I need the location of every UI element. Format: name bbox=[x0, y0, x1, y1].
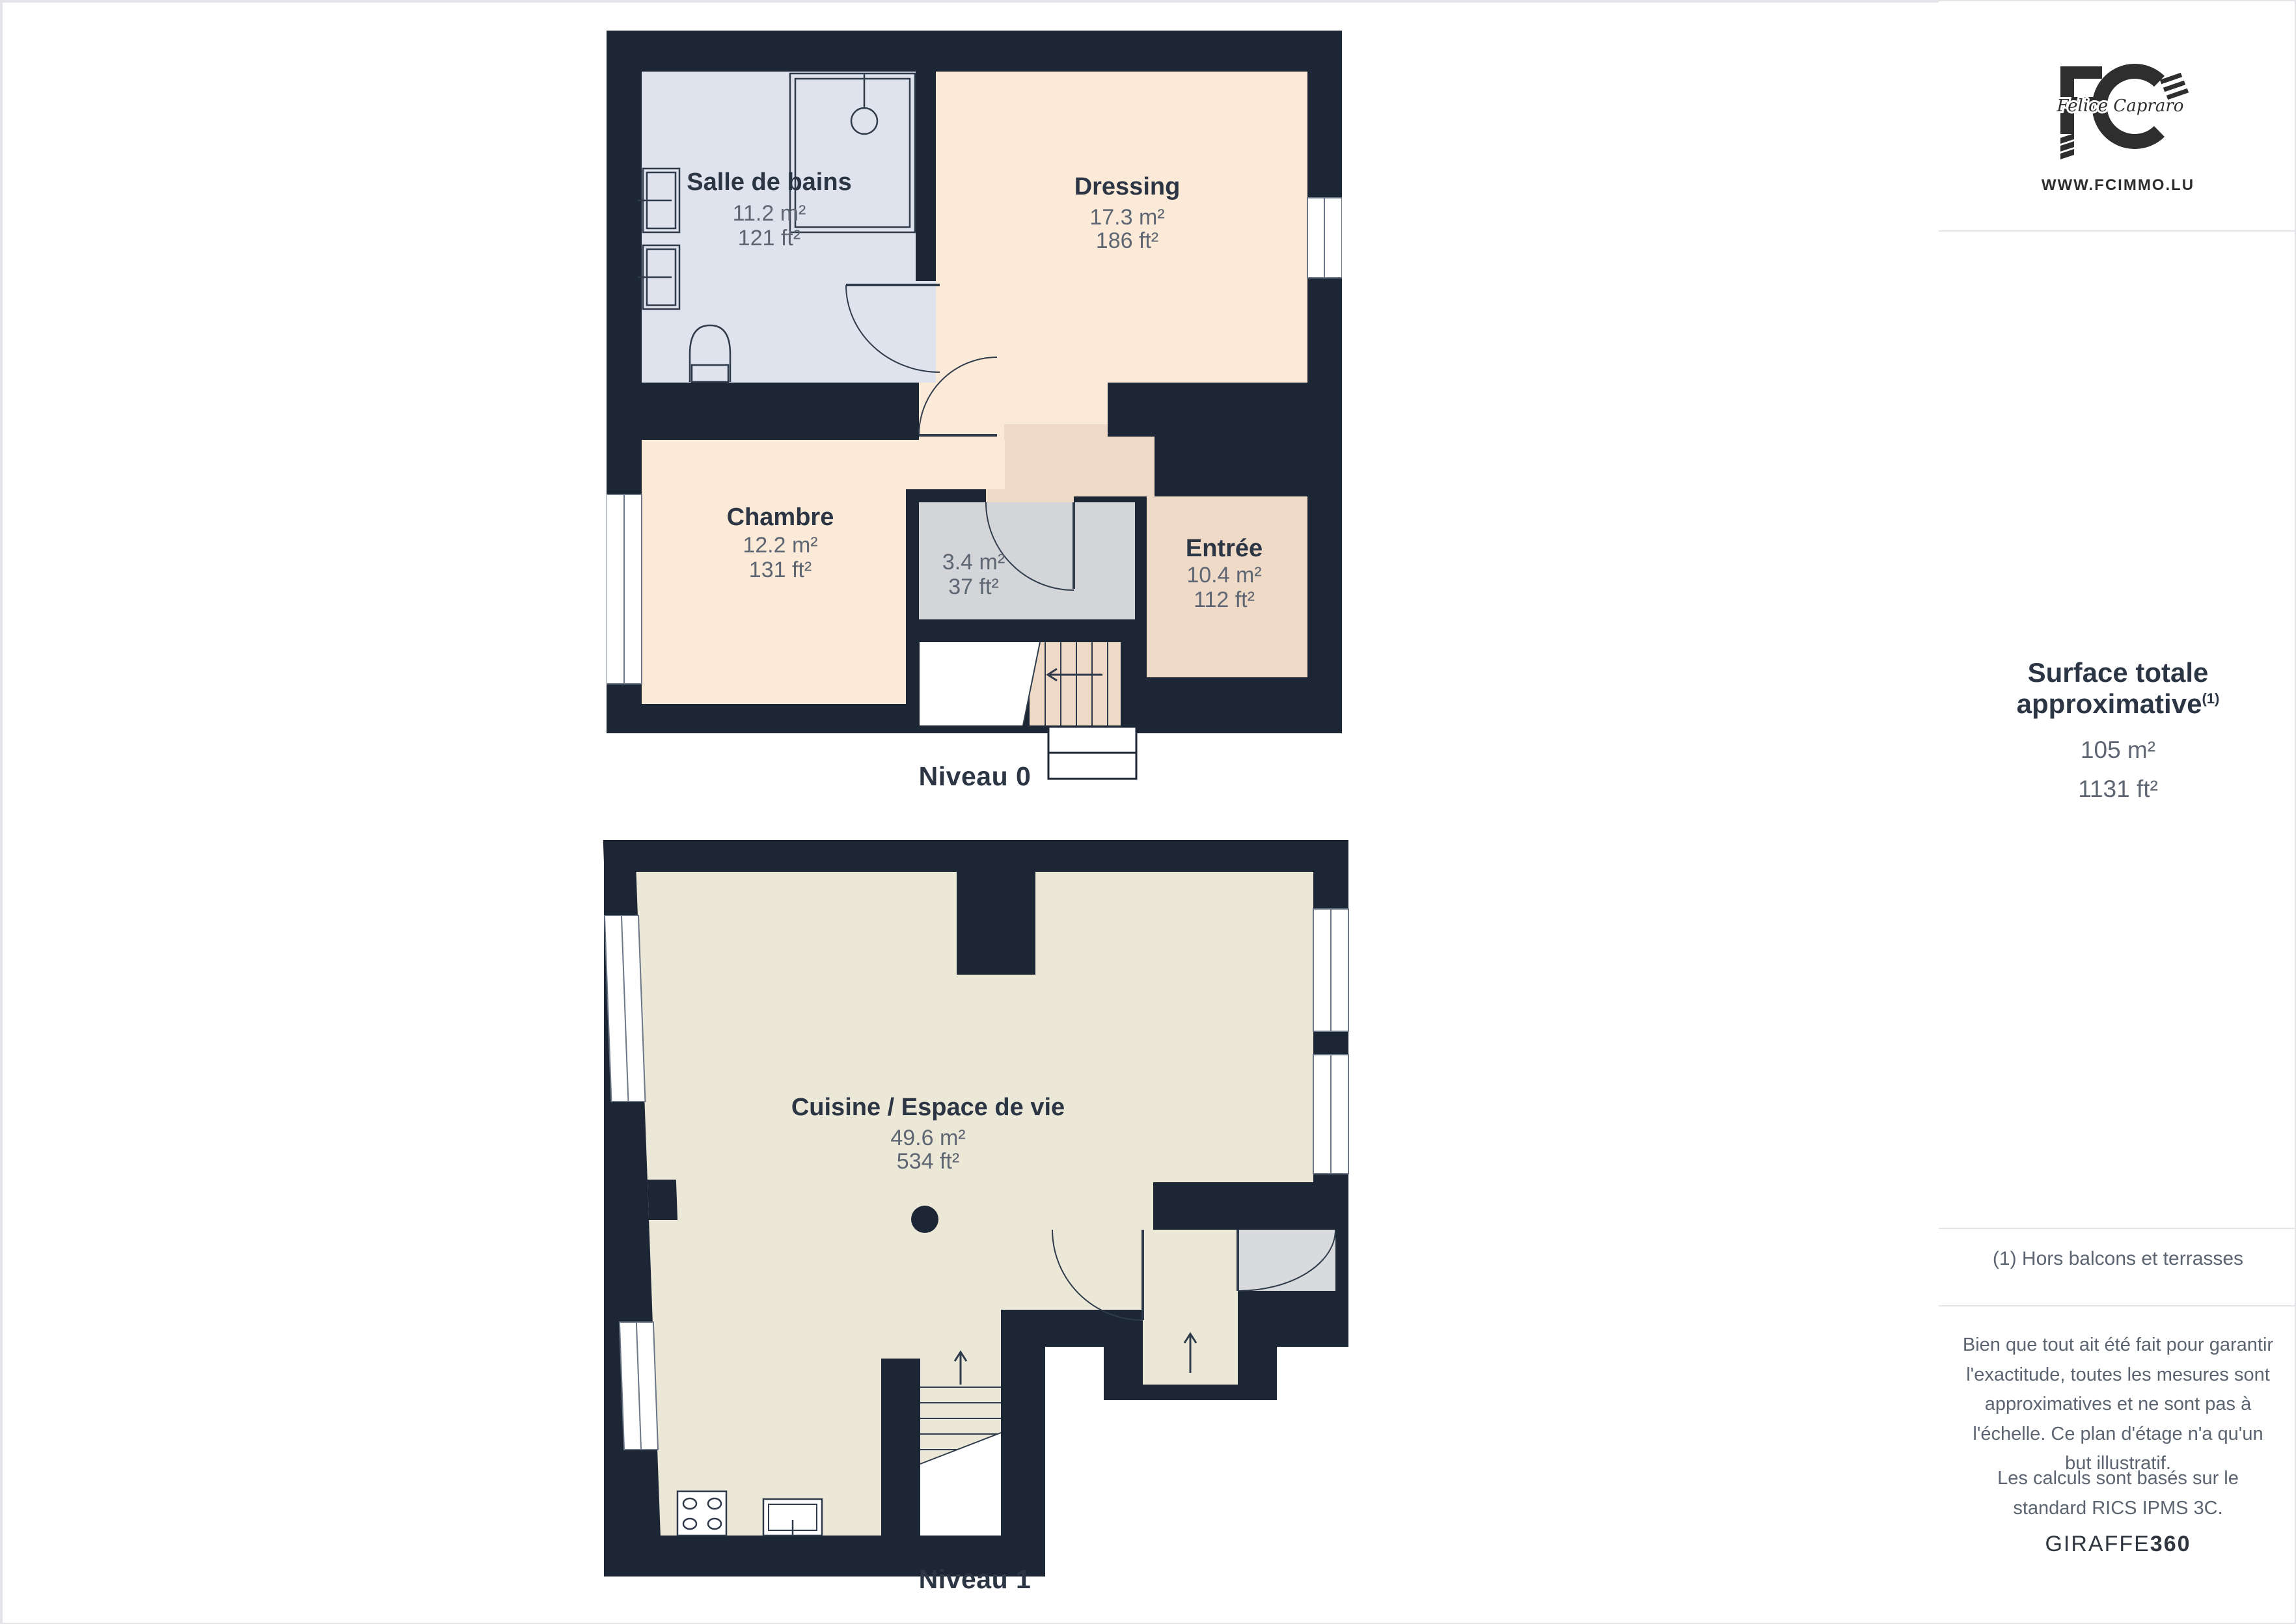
info-sidebar: Felice Capraro WWW.FCIMMO.LU Surface tot… bbox=[1939, 1, 2296, 1624]
surface-total-block: Surface totale approximative(1) 105 m² 1… bbox=[1939, 657, 2296, 803]
column-dot bbox=[911, 1206, 938, 1233]
door-niche bbox=[1238, 1230, 1335, 1291]
brand-giraffe360: GIRAFFE360 bbox=[1939, 1532, 2296, 1557]
room-area-ft2: 186 ft² bbox=[1096, 228, 1158, 253]
fc-logo-monogram: Felice Capraro bbox=[2043, 59, 2193, 169]
window-cuisine-right-bottom bbox=[1313, 1055, 1348, 1174]
window-chambre-left bbox=[607, 494, 642, 684]
window-cuisine-left-top bbox=[605, 915, 645, 1102]
hall-floor-upper bbox=[1004, 383, 1108, 424]
hall-floor-right bbox=[1108, 437, 1155, 496]
surface-value-m2: 105 m² bbox=[1939, 737, 2296, 764]
sidebar-divider bbox=[1939, 1305, 2296, 1306]
wc-door-opening bbox=[986, 489, 1074, 502]
bathroom-door-opening bbox=[916, 281, 936, 383]
room-label: Dressing bbox=[1074, 173, 1181, 200]
surface-title: Surface totale approximative(1) bbox=[1939, 657, 2296, 720]
room-area-m2: 11.2 m² bbox=[733, 201, 806, 226]
stove-icon bbox=[677, 1491, 726, 1536]
brand-suffix: 360 bbox=[2150, 1532, 2191, 1556]
room-label: Entrée bbox=[1186, 535, 1263, 562]
room-area-m2: 49.6 m² bbox=[890, 1126, 965, 1150]
room-area-m2: 12.2 m² bbox=[743, 533, 817, 558]
agency-logo: Felice Capraro WWW.FCIMMO.LU bbox=[1939, 59, 2296, 195]
vestibule-side-wall bbox=[1104, 1347, 1143, 1387]
sidebar-divider-vertical bbox=[1, 1, 3, 1624]
room-area-ft2: 131 ft² bbox=[749, 558, 812, 582]
room-label: Salle de bains bbox=[687, 169, 851, 196]
surface-footnote-marker: (1) bbox=[2202, 690, 2219, 707]
footnote-text: (1) Hors balcons et terrasses bbox=[1939, 1248, 2296, 1270]
sidebar-divider bbox=[1939, 1228, 2296, 1229]
level-1-label: Niveau 1 bbox=[780, 1564, 1170, 1595]
window-cuisine-right-top bbox=[1313, 909, 1348, 1031]
wall-nub bbox=[648, 1180, 677, 1220]
stairs-void bbox=[920, 642, 1040, 725]
chimney-notch bbox=[957, 872, 1035, 975]
alcove-wall bbox=[1153, 1182, 1348, 1230]
surface-value-ft2: 1131 ft² bbox=[1939, 776, 2296, 803]
sidebar-divider bbox=[1939, 230, 2296, 232]
logo-website-text: WWW.FCIMMO.LU bbox=[1939, 176, 2296, 195]
room-area-ft2: 112 ft² bbox=[1194, 588, 1255, 612]
section-divider-horizontal bbox=[1, 1, 1939, 3]
kitchen-sink-icon bbox=[763, 1499, 822, 1536]
disclaimer-standard: Les calculs sont basés sur le standard R… bbox=[1961, 1464, 2276, 1523]
chambre-door-opening bbox=[919, 383, 1004, 440]
room-area-m2: 3.4 m² bbox=[942, 550, 1005, 575]
stairwell-wall-left bbox=[881, 1359, 920, 1577]
room-area-ft2: 534 ft² bbox=[897, 1149, 959, 1174]
floorplan-page: Salle de bains 11.2 m² 121 ft² Dressing … bbox=[0, 0, 2296, 1624]
room-label: Cuisine / Espace de vie bbox=[791, 1094, 1065, 1121]
room-chambre-floor-strip bbox=[906, 440, 1005, 489]
window-dressing-right bbox=[1307, 198, 1342, 278]
logo-script-text: Felice Capraro bbox=[2056, 96, 2183, 116]
brand-name: GIRAFFE bbox=[2045, 1532, 2150, 1556]
room-area-m2: 17.3 m² bbox=[1089, 205, 1164, 230]
disclaimer-accuracy: Bien que tout ait été fait pour garantir… bbox=[1961, 1331, 2276, 1479]
window-cuisine-left-bottom bbox=[620, 1322, 658, 1450]
room-area-m2: 10.4 m² bbox=[1186, 563, 1261, 588]
floor-plan-level-0: Salle de bains 11.2 m² 121 ft² Dressing … bbox=[607, 31, 1342, 785]
room-label: Chambre bbox=[727, 504, 834, 531]
room-area-ft2: 121 ft² bbox=[738, 226, 800, 250]
vestibule-side-wall bbox=[1238, 1347, 1277, 1387]
level-0-label: Niveau 0 bbox=[780, 761, 1170, 792]
stairwell-wall-right bbox=[1001, 1310, 1045, 1577]
floor-plan-level-1: Cuisine / Espace de vie 49.6 m² 534 ft² bbox=[587, 828, 1355, 1582]
surface-title-text: Surface totale approximative bbox=[2017, 657, 2209, 719]
room-area-ft2: 37 ft² bbox=[948, 575, 998, 599]
hall-floor-lower bbox=[1004, 424, 1108, 496]
niche-wall bbox=[1238, 1291, 1348, 1347]
